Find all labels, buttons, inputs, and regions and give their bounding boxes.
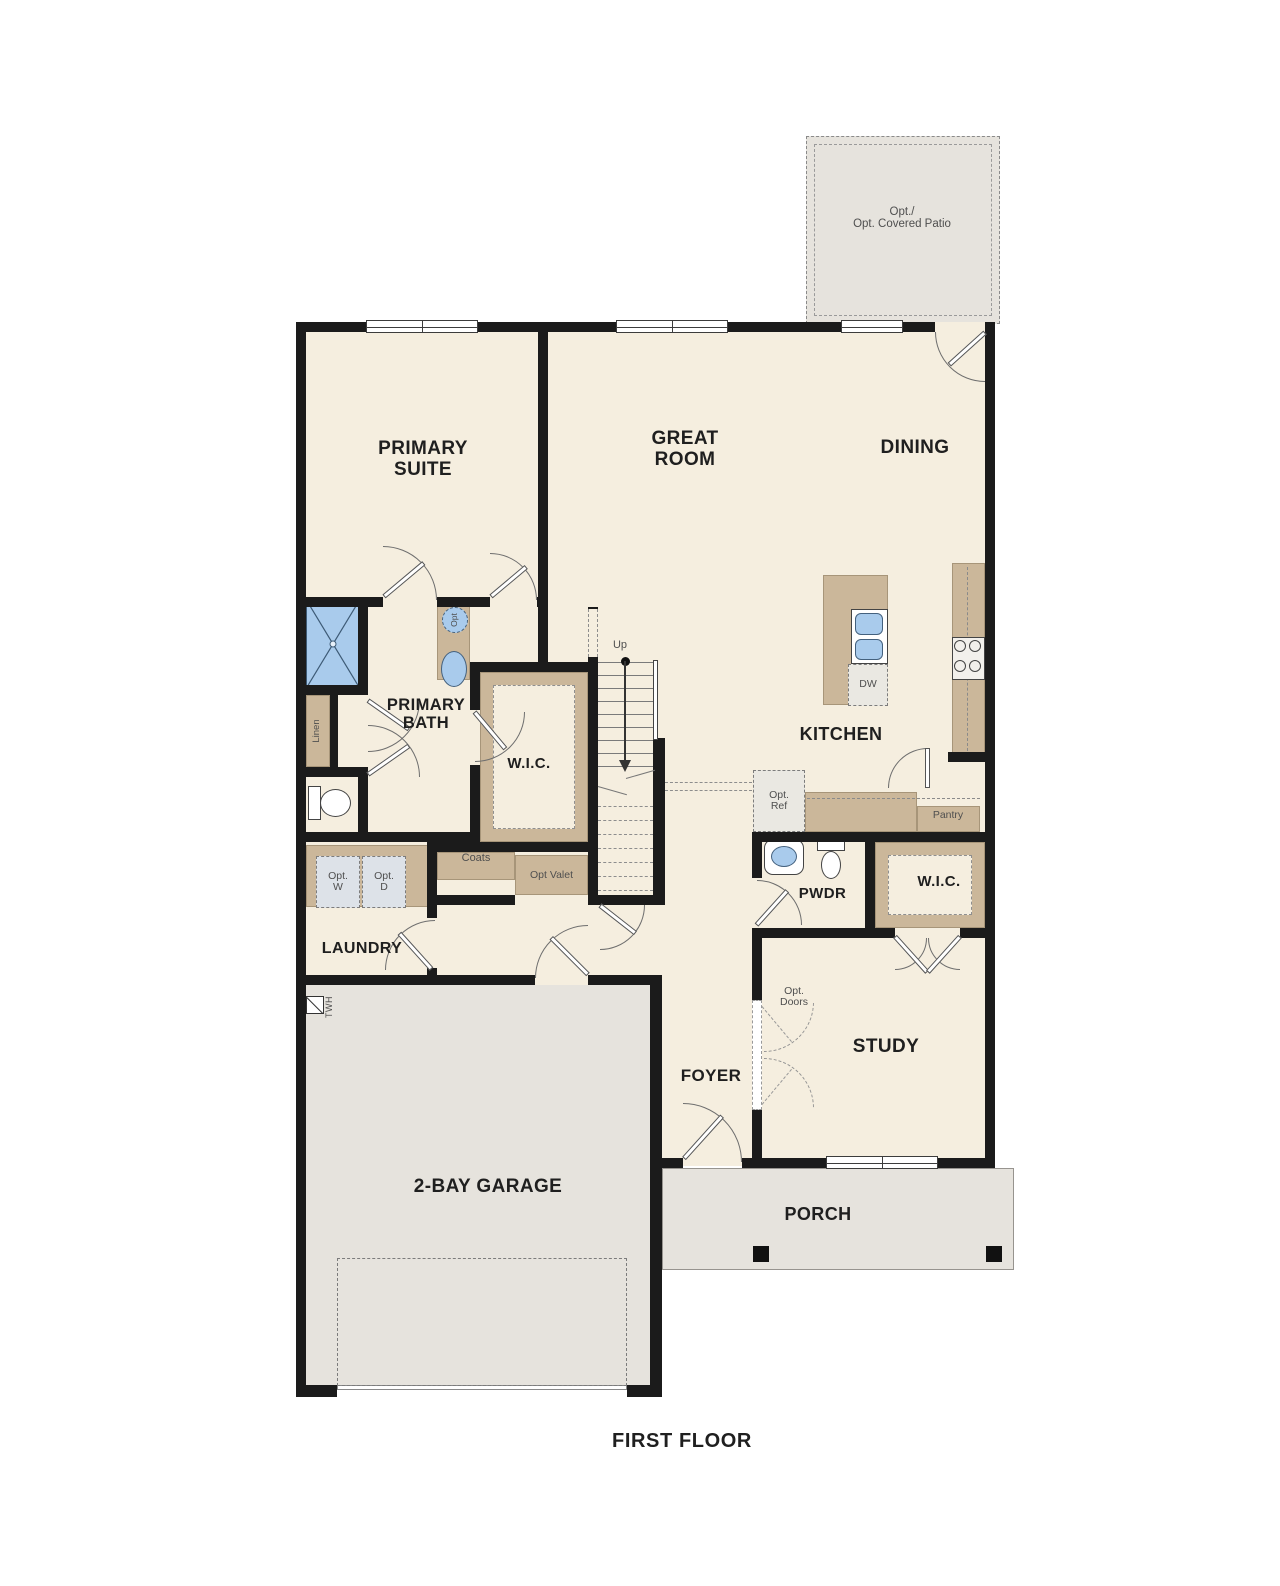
dishwasher-label: DW — [859, 679, 877, 690]
label-porch: PORCH — [760, 1204, 876, 1224]
burner-2 — [969, 640, 981, 652]
bath-toilet-bowl — [320, 789, 351, 817]
wall-stair-bottom — [588, 895, 665, 905]
label-pantry: Pantry — [917, 810, 979, 821]
stair-tread-dashed — [598, 876, 653, 877]
up-arrow-line — [624, 661, 626, 761]
label-primary-bath: PRIMARY BATH — [356, 696, 496, 733]
window-divider — [672, 321, 673, 332]
wall-hall-right-c — [752, 1110, 762, 1158]
wall-stair-right — [653, 738, 665, 905]
opt-fridge-label: Opt. Ref — [769, 790, 789, 813]
garage-apron-dashed — [337, 1258, 627, 1386]
wall-suite-bottom-a — [296, 597, 383, 607]
label-pwdr: PWDR — [785, 886, 860, 903]
wall-garage-right — [650, 985, 662, 1385]
stair-tread-dashed — [598, 806, 653, 807]
wall-shower-right — [358, 597, 368, 695]
opt-doors-arc-bottom — [764, 1058, 814, 1108]
opt-dryer-label: Opt. D — [374, 871, 394, 894]
label-opt-doors: Opt. Doors — [766, 986, 822, 1009]
window-line — [842, 327, 902, 328]
stair-tread-dashed — [598, 862, 653, 863]
opt-dryer-box: Opt. D — [362, 856, 406, 908]
window-divider — [422, 321, 423, 332]
wall-kitchen-bottom — [762, 832, 995, 842]
label-dining: DINING — [845, 437, 985, 458]
label-foyer: FOYER — [653, 1066, 769, 1085]
wall-suite-greatroom — [538, 322, 548, 672]
window-divider — [882, 1157, 883, 1168]
stair-tread-dashed — [598, 848, 653, 849]
label-study: STUDY — [828, 1036, 944, 1057]
label-laundry: LAUNDRY — [306, 940, 418, 958]
counter-dashed-line — [807, 798, 980, 799]
label-garage: 2-BAY GARAGE — [388, 1176, 588, 1197]
floor-plan: DW Opt. Ref Opt Linen Opt. W Opt. D — [0, 0, 1280, 1586]
label-primary-suite: PRIMARY SUITE — [333, 438, 513, 481]
opt-doors-strip — [752, 1000, 762, 1110]
opt-fridge-box: Opt. Ref — [753, 770, 805, 832]
label-first-floor: FIRST FLOOR — [582, 1430, 782, 1452]
window-primary-suite — [366, 320, 478, 333]
porch-post-right — [986, 1246, 1002, 1262]
opt-doors-arc-top — [764, 1002, 814, 1052]
window-great-room — [616, 320, 728, 333]
wall-bath-laundry — [296, 832, 470, 842]
label-wic-primary: W.I.C. — [490, 756, 568, 773]
wall-garage-top-b — [588, 975, 662, 985]
stair-tread-dashed — [598, 890, 653, 891]
wall-linen-toilet — [296, 767, 368, 777]
label-kitchen: KITCHEN — [776, 724, 906, 744]
wall-hall-right-a — [752, 832, 762, 878]
wall-wic2-bottom-a — [875, 928, 895, 938]
twh-label: TWH — [325, 989, 335, 1025]
stair-tread-dashed — [598, 834, 653, 835]
wall-powder-bottom — [752, 928, 875, 938]
wall-hall-right-b — [752, 928, 762, 1002]
wall-pantry-stub — [948, 752, 995, 762]
linen-label: Linen — [312, 708, 324, 754]
burner-4 — [969, 660, 981, 672]
shower-x-marks — [307, 601, 359, 687]
burner-1 — [954, 640, 966, 652]
wall-wic2-bottom-b — [960, 928, 995, 938]
patio-door-opening — [935, 322, 985, 332]
label-wic-study: W.I.C. — [900, 874, 978, 891]
label-opt-valet: Opt Valet — [514, 870, 589, 881]
stair-tread-dashed — [598, 820, 653, 821]
island-sink-basin-top — [855, 613, 883, 635]
burner-3 — [954, 660, 966, 672]
label-coats: Coats — [438, 853, 514, 865]
opt-washer-label: Opt. W — [328, 871, 348, 894]
pantry-door-arc — [888, 748, 928, 788]
wall-wic-top — [470, 662, 598, 672]
vanity-sink — [441, 651, 467, 687]
stair-rail — [653, 660, 658, 740]
wall-garage-top-a — [296, 975, 535, 985]
wall-suite-bottom-c — [537, 597, 548, 607]
porch-post-left — [753, 1246, 769, 1262]
wall-garage-bottom-right — [627, 1385, 662, 1397]
opt-washer-box: Opt. W — [316, 856, 360, 908]
wall-powder-right — [865, 842, 875, 938]
wall-study-bottom-b — [742, 1158, 828, 1168]
island-sink-basin-bottom — [855, 639, 883, 660]
label-patio: Opt./ Opt. Covered Patio — [832, 206, 972, 231]
pwdr-sink-bowl — [771, 846, 797, 867]
window-study — [826, 1156, 938, 1169]
shower — [306, 600, 360, 688]
wall-laundry-right-a — [427, 842, 437, 918]
up-label: Up — [602, 640, 638, 652]
wall-linen-right — [330, 695, 338, 775]
window-dining — [841, 320, 903, 333]
wall-garage-bottom-left — [296, 1385, 337, 1397]
label-great-room: GREAT ROOM — [605, 428, 765, 471]
up-arrowhead — [619, 760, 631, 772]
dishwasher-box: DW — [848, 664, 888, 706]
wall-suite-bottom-b — [437, 597, 490, 607]
wall-shower-linen — [296, 685, 368, 695]
pantry-door-leaf — [925, 748, 930, 788]
wall-wic-bottom — [430, 842, 598, 852]
stair-opening-dashed — [588, 609, 598, 657]
wall-coats-bottom — [427, 895, 515, 905]
wall-right — [985, 322, 995, 1168]
hall-header-dash-2 — [665, 790, 752, 791]
wall-wic-left-b — [470, 765, 480, 842]
wall-study-bottom-c — [937, 1158, 995, 1168]
pwdr-toilet-bowl — [821, 851, 841, 879]
wall-left — [296, 322, 306, 1397]
hall-header-dash-1 — [665, 782, 752, 783]
